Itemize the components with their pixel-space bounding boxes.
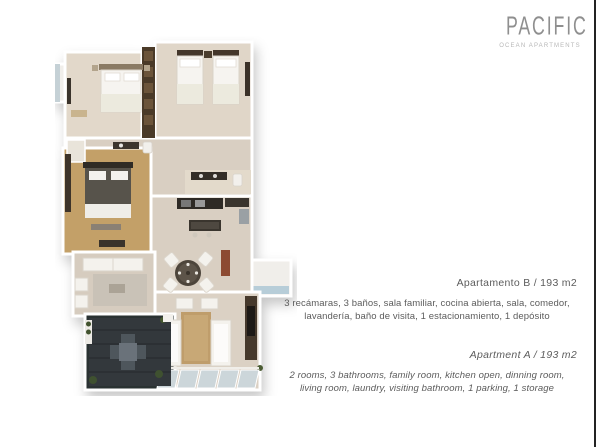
bedroom-3-furniture <box>177 50 250 104</box>
apartment-title-en: Apartment A / 193 m2 <box>277 349 577 361</box>
apartment-title-es: Apartamento B / 193 m2 <box>277 277 577 289</box>
listing-spanish: Apartamento B / 193 m2 3 recámaras, 3 ba… <box>277 277 577 323</box>
apartment-description-en: 2 rooms, 3 bathrooms, family room, kitch… <box>277 369 577 395</box>
closet-wardrobe <box>142 47 155 138</box>
description-es-line2: lavandería, baño de visita, 1 estacionam… <box>304 311 549 322</box>
kitchen-dining-floor <box>151 196 252 292</box>
brand-logo: PACIFIC OCEAN APARTMENTS <box>494 12 586 49</box>
apartment-description-es: 3 recámaras, 3 baños, sala familiar, coc… <box>277 297 577 323</box>
description-es-line1: 3 recámaras, 3 baños, sala familiar, coc… <box>284 298 570 309</box>
right-border-line <box>594 0 596 447</box>
family-room-furniture <box>75 258 147 308</box>
listing-english: Apartment A / 193 m2 2 rooms, 3 bathroom… <box>277 349 577 395</box>
floor-plan <box>55 36 297 396</box>
description-en-line1: 2 rooms, 3 bathrooms, family room, kitch… <box>290 370 565 381</box>
description-en-line2: living room, laundry, visiting bathroom,… <box>300 383 554 394</box>
brochure-page: PACIFIC OCEAN APARTMENTS <box>0 0 600 447</box>
brand-name: PACIFIC <box>506 12 574 42</box>
brand-tagline: OCEAN APARTMENTS <box>494 43 586 49</box>
terrace-furniture <box>85 314 173 386</box>
